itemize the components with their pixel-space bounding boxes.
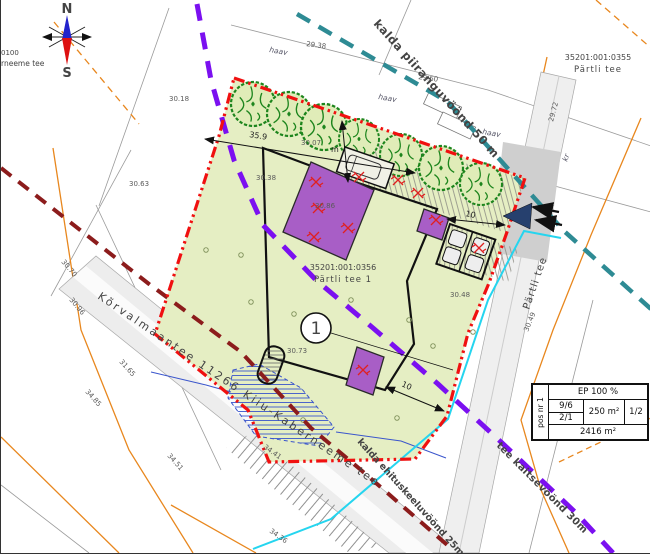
table-total-area-cell: 2416 m² [549, 425, 647, 439]
elevation-label: 30.48 [450, 291, 470, 299]
compass-south-needle [62, 38, 72, 65]
elevation-label: 29.60 [418, 73, 439, 84]
elevation-label: 30.63 [129, 180, 149, 188]
site-info-table: pos nr 1 EP 100 % 9/6 2/1 250 m² 1/2 241… [531, 383, 649, 441]
compass-rose: N S [43, 2, 91, 81]
main-parcel-name: Pärtli tee 1 [314, 275, 372, 285]
table-pos-cell: pos nr 1 [533, 385, 549, 439]
table-storeys-cell: 9/6 [549, 400, 583, 413]
tree-icon [419, 146, 463, 190]
elevation-label: 34.51 [166, 452, 185, 472]
table-ratio-cell: 2/1 [549, 413, 583, 425]
compass-south-label: S [62, 66, 71, 81]
elevation-label: 30.73 [287, 347, 307, 355]
position-number: 1 [311, 319, 322, 339]
corner-parcel-name: rneeme tee [1, 59, 45, 68]
elevation-label: 31.65 [118, 358, 137, 378]
adjacent-parcel-name: Pärtli tee [574, 65, 622, 75]
table-fraction-cell: 1/2 [625, 400, 647, 424]
table-pos-label: pos nr 1 [536, 397, 545, 428]
position-marker: 1 [301, 313, 331, 343]
compass-north-needle [62, 15, 72, 40]
elevation-label: 30.86 [315, 202, 336, 210]
main-parcel-code: 35201:001:0356 [310, 263, 376, 272]
adjacent-parcel-code: 35201:001:0355 [565, 53, 631, 62]
table-area-cell: 250 m² [584, 400, 625, 424]
elevation-label: 29.38 [306, 40, 327, 51]
vegetation-label: haav [378, 92, 398, 104]
site-plan-page: 35.9 m 10 10 1 N S 0100 rneeme tee 35201… [0, 0, 650, 554]
corner-parcel-code: 0100 [1, 49, 19, 57]
dim-label-m: m [331, 145, 339, 154]
elevation-label: 30.18 [169, 95, 189, 103]
road-protection-label: tee kaitsevöönd 30m [494, 440, 590, 536]
elevation-label: 34.85 [84, 388, 103, 408]
table-usage-cell: EP 100 % [549, 385, 647, 400]
vegetation-label: kr [560, 152, 571, 163]
site-plan-map: 35.9 m 10 10 1 N S 0100 rneeme tee 35201… [1, 0, 650, 553]
compass-north-label: N [62, 2, 73, 17]
elevation-label: 30.07 [301, 139, 321, 147]
vegetation-label: haav [269, 45, 289, 57]
tree-icon [460, 163, 502, 205]
elevation-label: 30.38 [256, 174, 276, 182]
